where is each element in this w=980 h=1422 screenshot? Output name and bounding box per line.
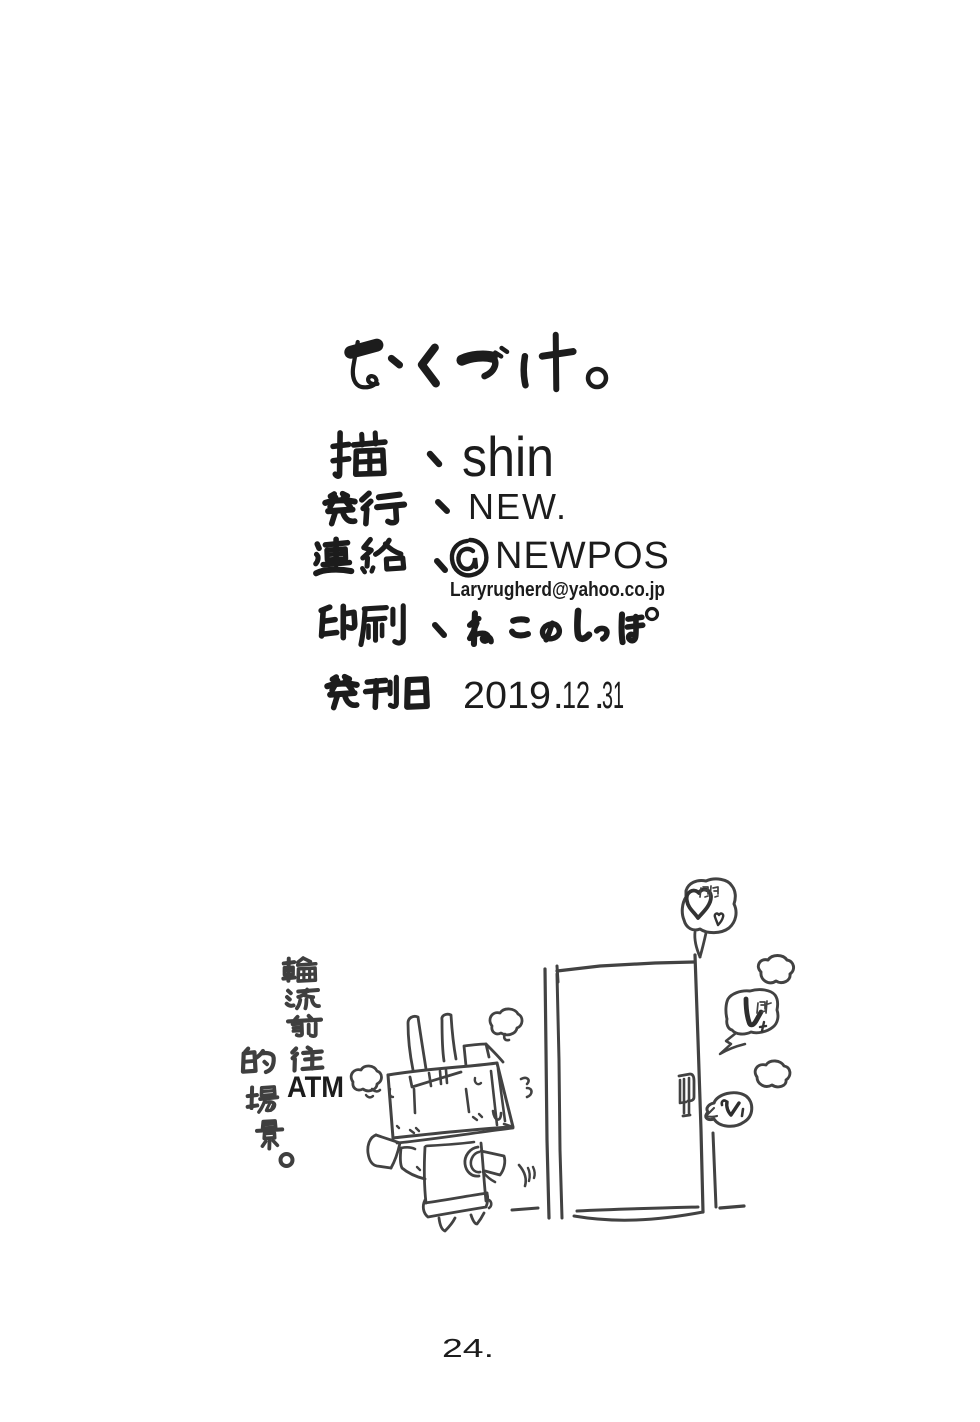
svg-text:31: 31 (602, 675, 624, 717)
svg-text:NEW.: NEW. (468, 486, 568, 527)
svg-text:ATM: ATM (287, 1071, 344, 1104)
svg-text:Laryrugherd@yahoo.co.jp: Laryrugherd@yahoo.co.jp (450, 579, 665, 601)
svg-text:NEWPOS: NEWPOS (495, 535, 670, 577)
svg-text:shin: shin (462, 425, 554, 488)
svg-text:12: 12 (562, 675, 590, 717)
svg-text:2019: 2019 (463, 675, 551, 717)
svg-text:24.: 24. (442, 1333, 494, 1363)
